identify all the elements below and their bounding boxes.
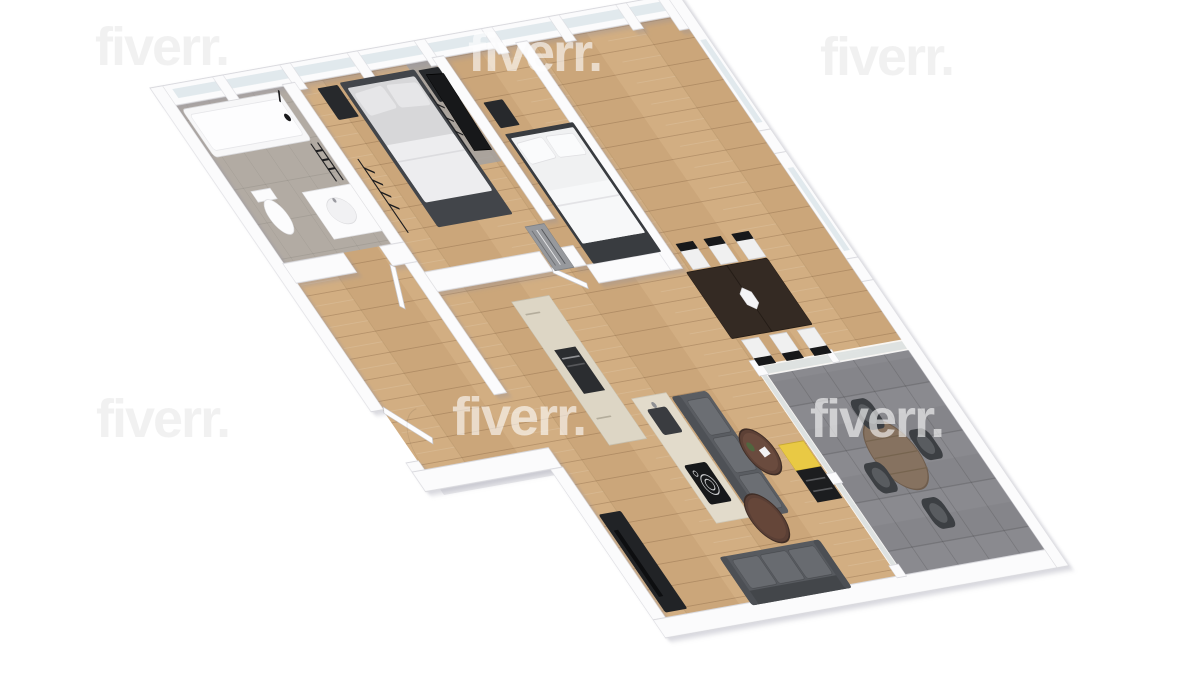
floorplan-render <box>0 0 1200 675</box>
floorplan-stage: fiverr. fiverr. fiverr. fiverr. fiverr. … <box>0 0 1200 675</box>
apartment <box>150 0 1069 660</box>
